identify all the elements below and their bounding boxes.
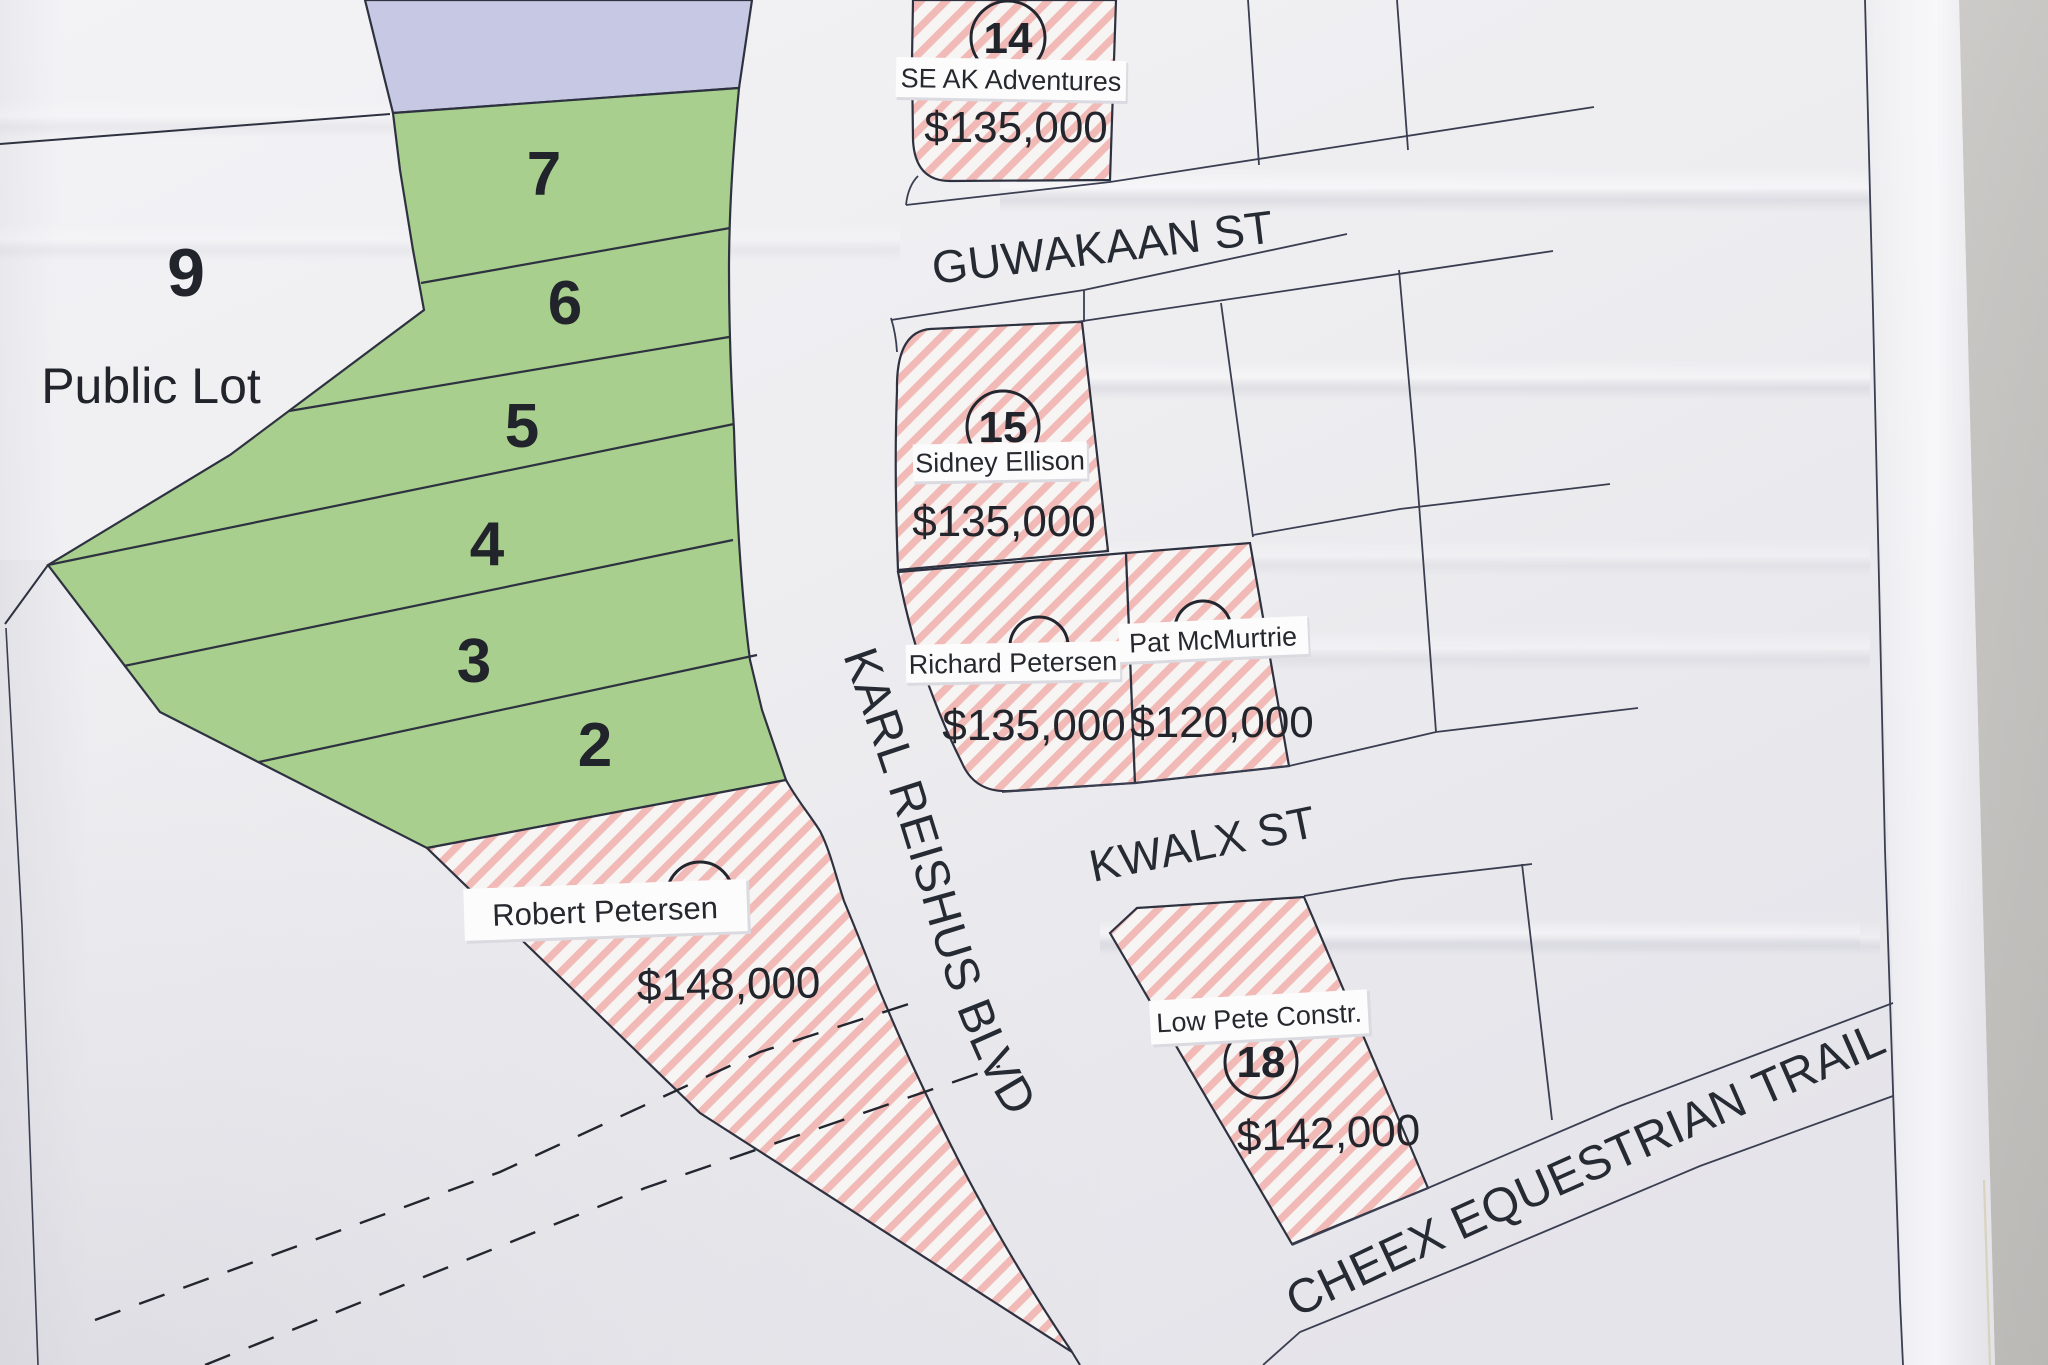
svg-text:$135,000: $135,000 bbox=[912, 497, 1096, 546]
svg-text:9: 9 bbox=[167, 235, 205, 311]
svg-text:Sidney Ellison: Sidney Ellison bbox=[915, 446, 1085, 479]
svg-text:6: 6 bbox=[548, 269, 582, 338]
svg-text:7: 7 bbox=[527, 140, 561, 209]
svg-text:2: 2 bbox=[578, 711, 612, 780]
svg-text:Richard Petersen: Richard Petersen bbox=[908, 646, 1117, 680]
svg-text:14: 14 bbox=[984, 14, 1033, 63]
svg-text:4: 4 bbox=[470, 510, 505, 579]
svg-text:Public Lot: Public Lot bbox=[41, 358, 261, 414]
svg-text:$142,000: $142,000 bbox=[1236, 1106, 1421, 1161]
svg-text:5: 5 bbox=[505, 392, 539, 461]
svg-text:SE AK Adventures: SE AK Adventures bbox=[900, 63, 1121, 97]
svg-text:$135,000: $135,000 bbox=[942, 701, 1126, 750]
svg-text:3: 3 bbox=[457, 627, 491, 696]
svg-text:$148,000: $148,000 bbox=[636, 958, 820, 1010]
svg-text:18: 18 bbox=[1237, 1038, 1286, 1087]
svg-text:$135,000: $135,000 bbox=[924, 103, 1108, 152]
svg-text:$120,000: $120,000 bbox=[1130, 698, 1314, 747]
